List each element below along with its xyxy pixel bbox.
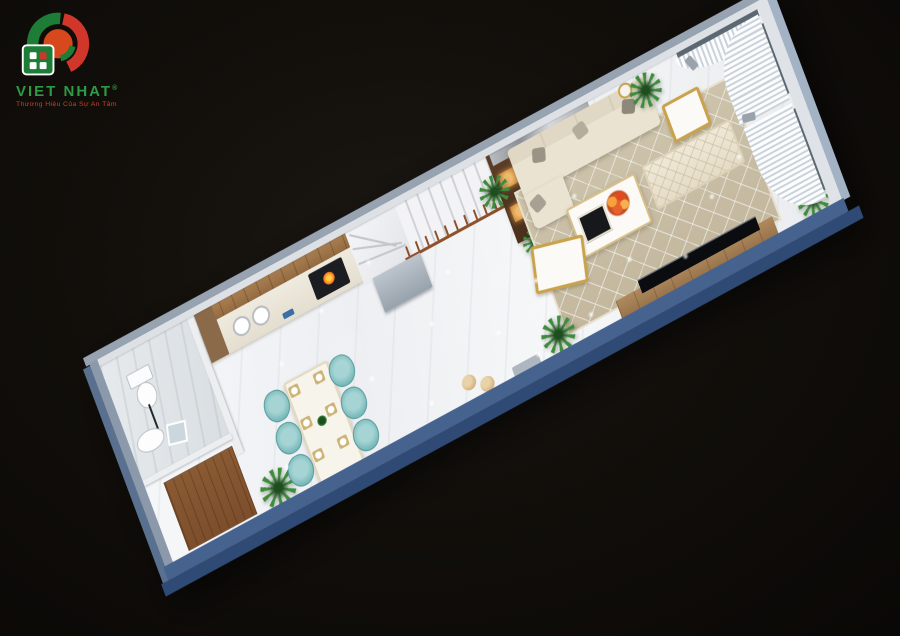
- brand-logo: VIET NHAT® Thương Hiệu Của Sự An Tâm: [16, 10, 136, 108]
- brand-tagline: Thương Hiệu Của Sự An Tâm: [16, 101, 136, 108]
- floor-plan: [89, 0, 846, 580]
- registered-mark: ®: [112, 85, 119, 92]
- scene-canvas: VIET NHAT® Thương Hiệu Của Sự An Tâm: [0, 0, 900, 636]
- throw-pillow: [532, 147, 546, 164]
- brand-name: VIET NHAT®: [16, 83, 136, 100]
- brand-emblem-icon: [16, 10, 94, 76]
